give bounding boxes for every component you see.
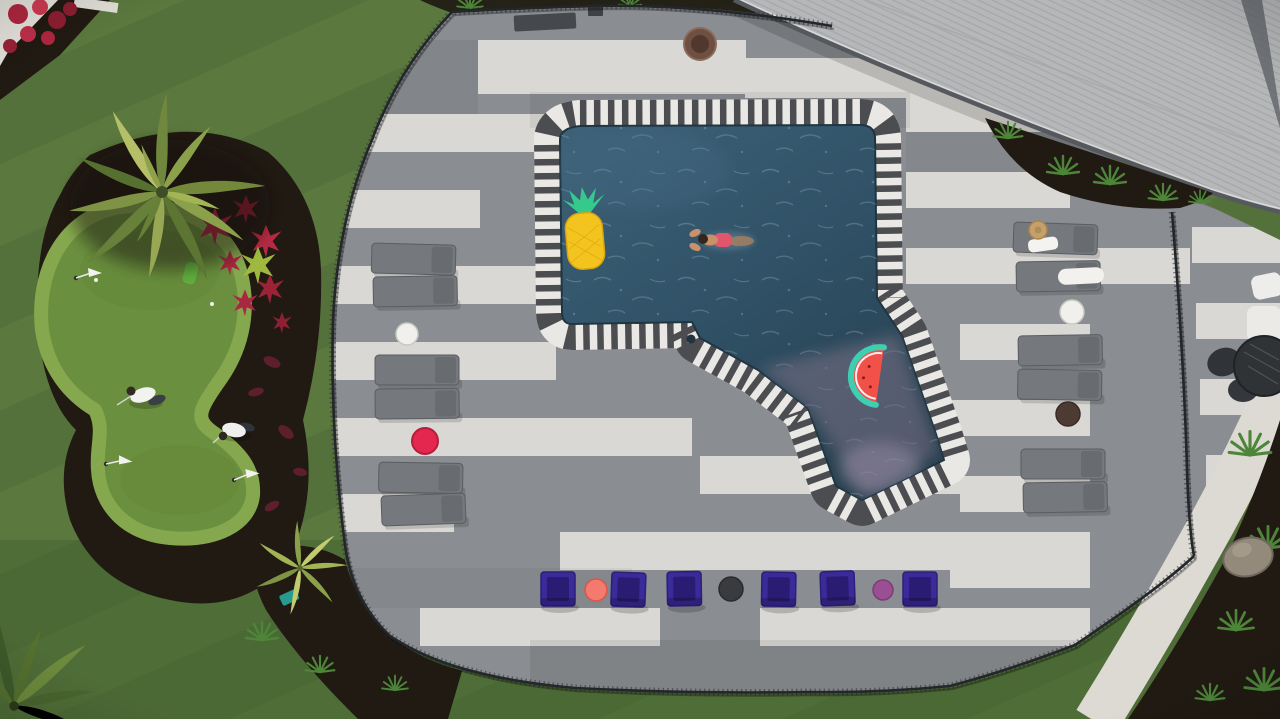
vignette (0, 0, 1280, 719)
aerial-pool-photo (0, 0, 1280, 719)
